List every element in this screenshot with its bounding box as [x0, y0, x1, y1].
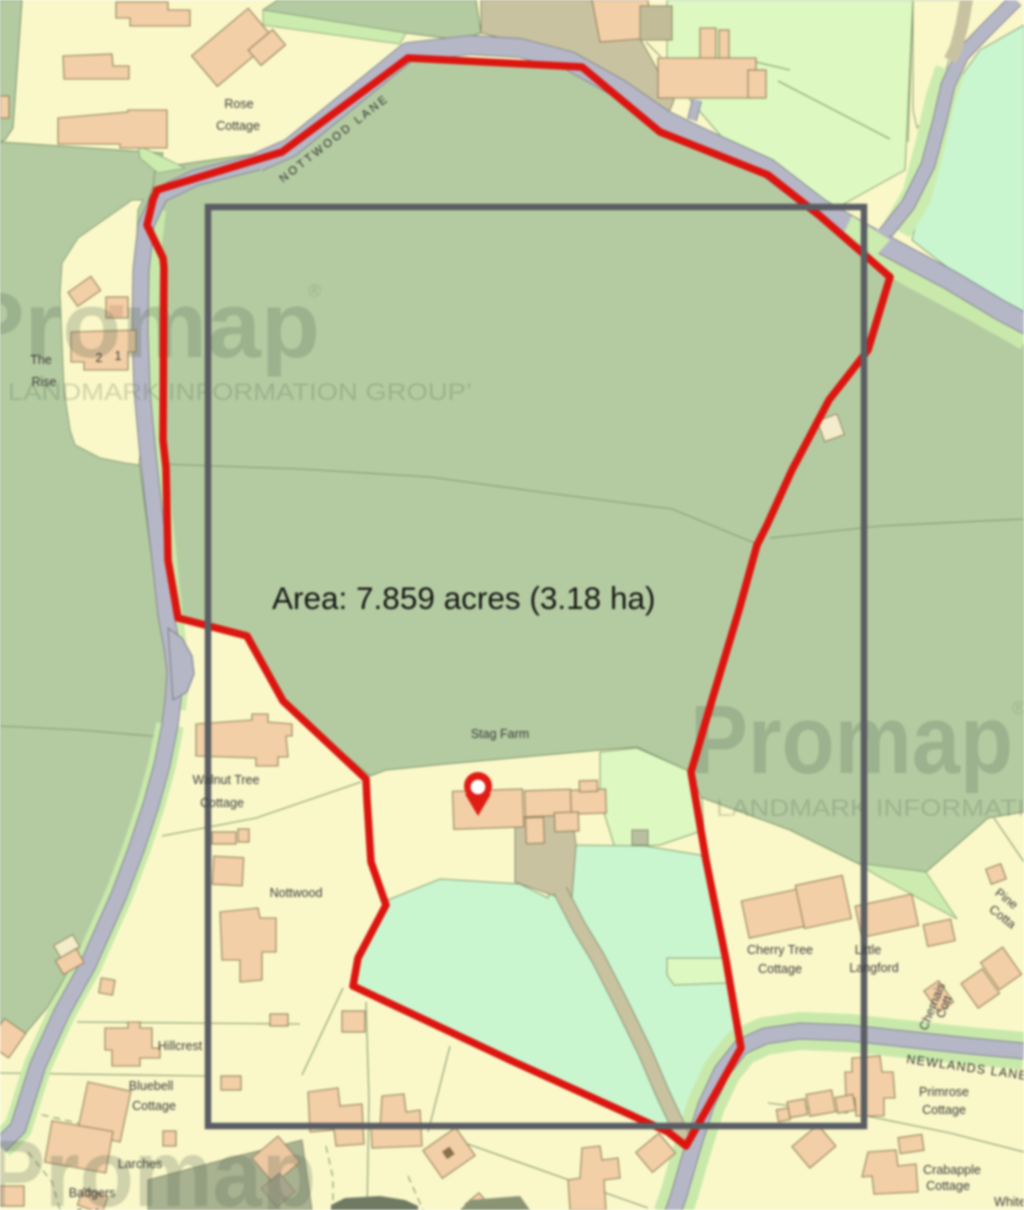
svg-text:LANDMARK INFORMATION GROUP’: LANDMARK INFORMATION GROUP’	[716, 795, 1024, 822]
svg-text:Bluebell: Bluebell	[129, 1079, 173, 1093]
svg-text:Larches: Larches	[118, 1157, 162, 1171]
svg-text:Rise: Rise	[31, 375, 56, 389]
svg-text:Area: 7.859 acres (3.18 ha): Area: 7.859 acres (3.18 ha)	[272, 580, 655, 616]
svg-text:Stag Farm: Stag Farm	[471, 727, 529, 741]
svg-text:Cottage: Cottage	[758, 962, 802, 976]
svg-text:Crabapple: Crabapple	[923, 1163, 981, 1177]
svg-text:Badgers: Badgers	[69, 1186, 116, 1200]
svg-text:Cottage: Cottage	[922, 1103, 966, 1117]
svg-text:Langford: Langford	[849, 961, 898, 975]
svg-text:Nottwood: Nottwood	[270, 886, 323, 900]
svg-text:White: White	[994, 1195, 1024, 1209]
svg-text:Cherry Tree: Cherry Tree	[747, 943, 813, 957]
svg-text:®: ®	[308, 281, 321, 301]
svg-text:Hillcrest: Hillcrest	[158, 1039, 203, 1053]
svg-text:Primrose: Primrose	[919, 1085, 969, 1099]
svg-text:Cottage: Cottage	[216, 119, 260, 133]
svg-text:®: ®	[1012, 698, 1024, 718]
svg-text:1: 1	[115, 349, 122, 363]
svg-text:Walnut Tree: Walnut Tree	[193, 773, 260, 787]
svg-text:Cottage: Cottage	[200, 796, 244, 810]
svg-text:Cottage: Cottage	[132, 1099, 176, 1113]
svg-text:Little: Little	[855, 943, 881, 957]
svg-text:Promap: Promap	[690, 685, 1013, 794]
svg-text:Cottage: Cottage	[926, 1179, 970, 1193]
svg-text:Rose: Rose	[224, 97, 253, 111]
svg-text:LANDMARK INFORMATION GROUP’: LANDMARK INFORMATION GROUP’	[8, 379, 472, 406]
svg-text:2: 2	[96, 351, 103, 365]
svg-text:The: The	[30, 353, 52, 367]
